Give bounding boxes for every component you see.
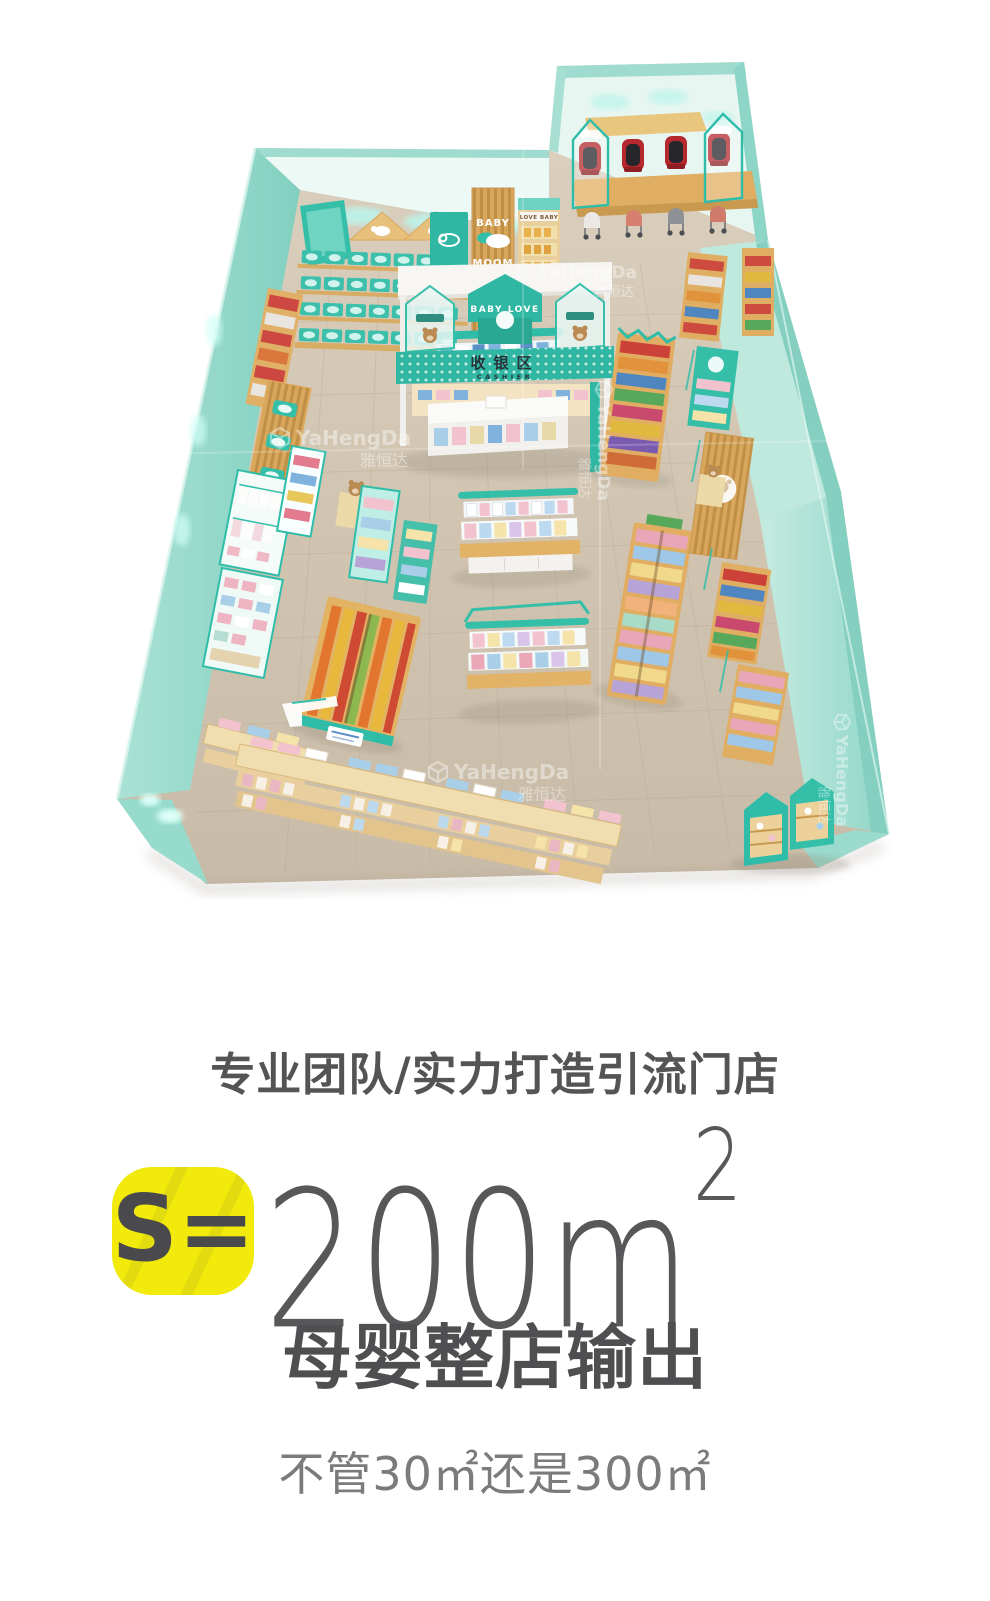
baby-sign-text: BABY [476, 218, 510, 229]
area-badge-label: S= [112, 1183, 255, 1275]
section-heading: 专业团队/实力打造引流门店 [0, 1038, 990, 1103]
area-superscript: 2 [693, 1107, 743, 1224]
cashier-banner: 收银区 CASHIER [396, 346, 614, 384]
poster-page: YaHengDa 雅恒达 [0, 0, 990, 1601]
annex-side-shelf [742, 248, 774, 336]
store-3d-render: YaHengDa 雅恒达 [0, 0, 990, 960]
store-render-canvas: YaHengDa 雅恒达 [0, 0, 990, 960]
cashier-sign-cn: 收银区 [470, 354, 539, 372]
area-badge: S= [112, 1167, 254, 1295]
area-value: 200m2 [264, 1164, 742, 1325]
cashier-sign-en: CASHIER [477, 373, 533, 381]
area-figure: S= 200m2 [0, 1163, 990, 1295]
main-title: 母婴整店输出 [0, 1302, 990, 1403]
subtitle: 不管30㎡还是300㎡ [0, 1438, 990, 1504]
love-baby-sign-text: LOVE BABY [520, 215, 559, 221]
teal-cloud-sign-panel [430, 212, 468, 268]
